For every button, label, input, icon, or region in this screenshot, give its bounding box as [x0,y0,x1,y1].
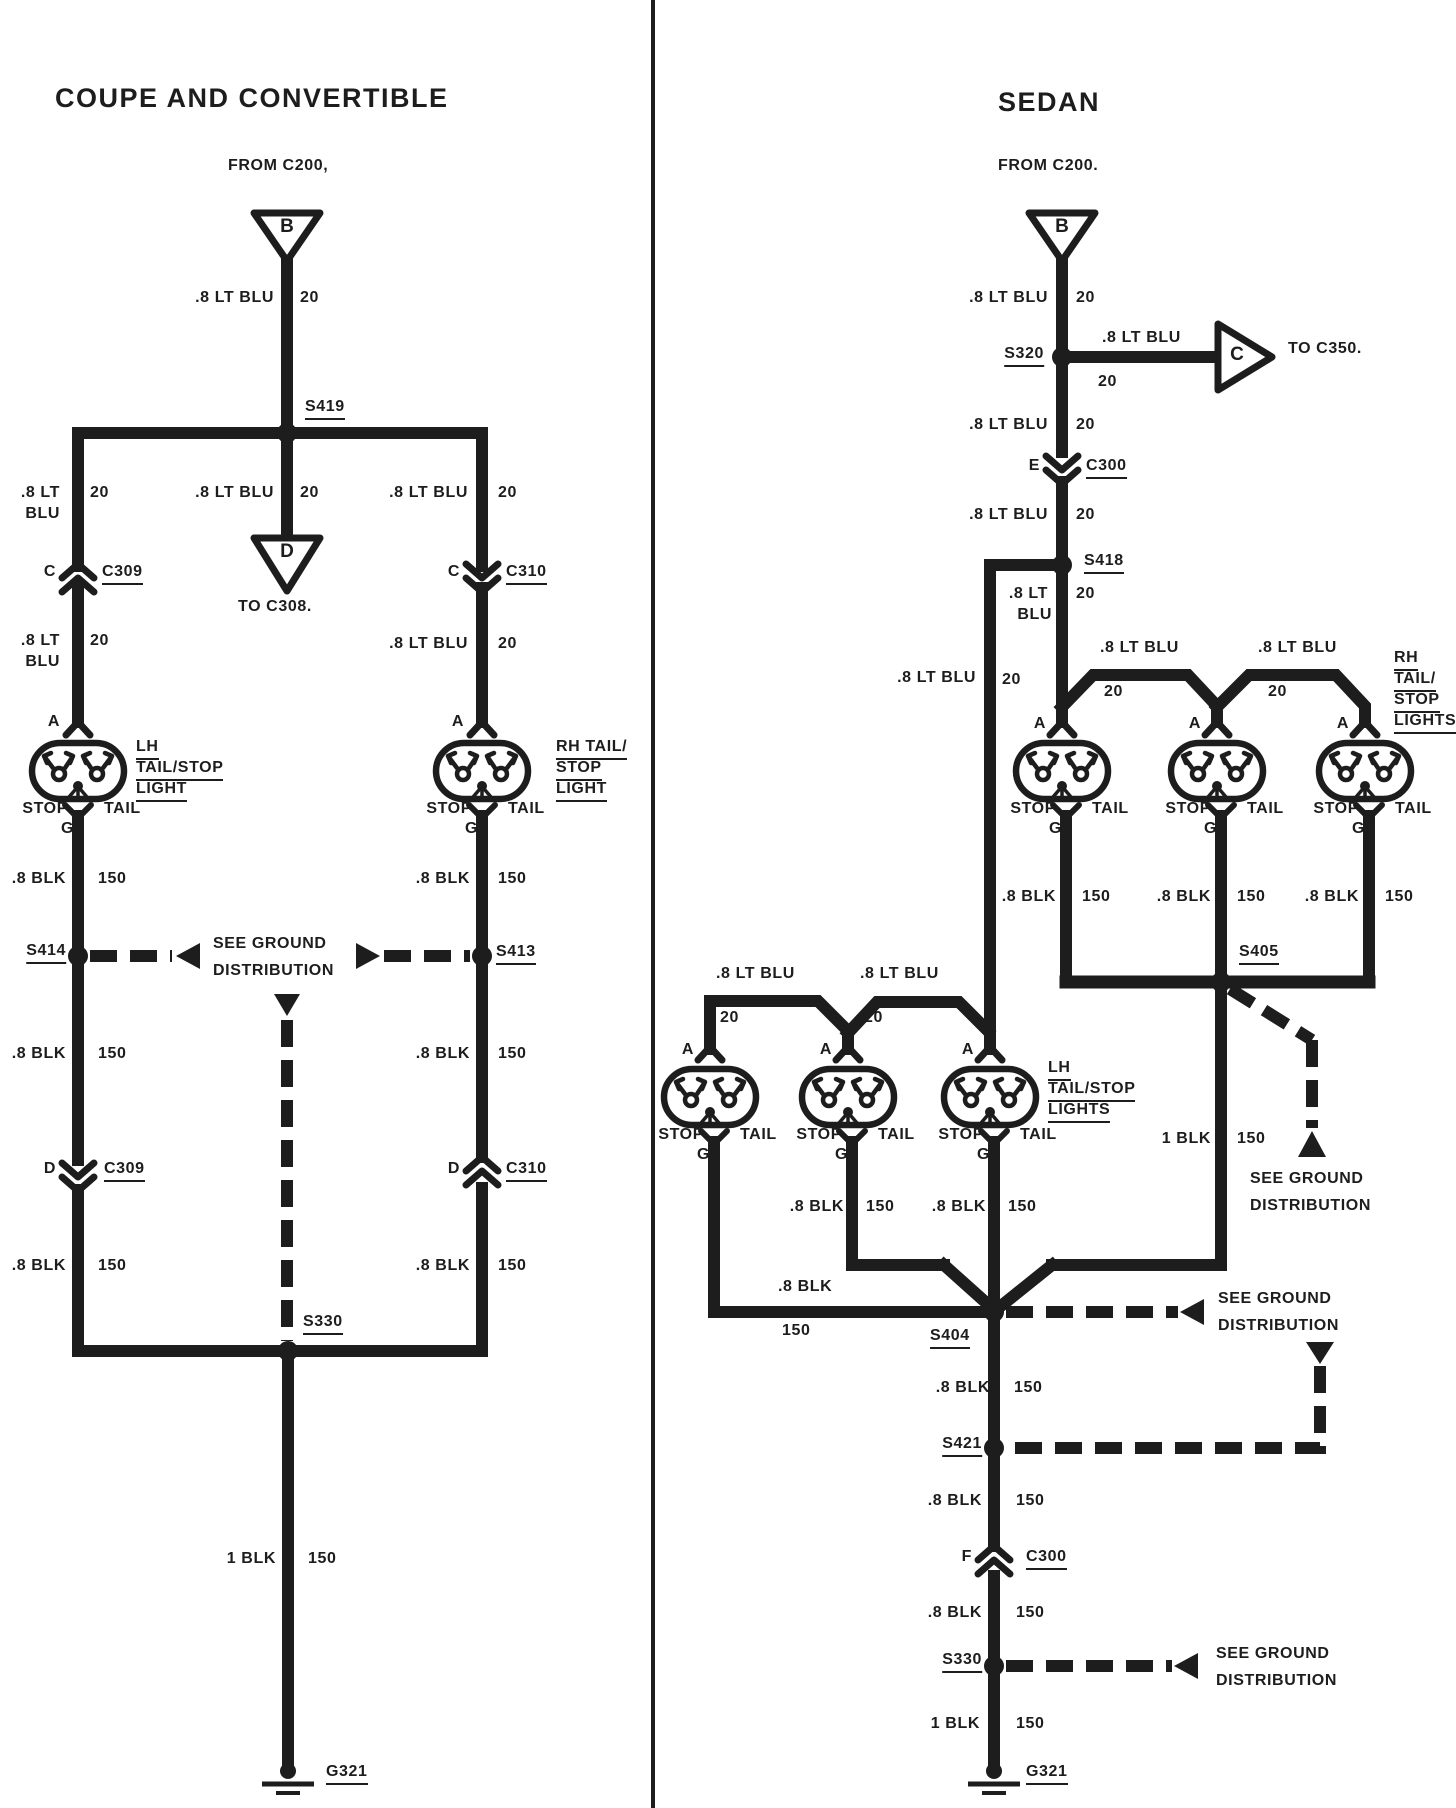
wire-label: BLU [1017,605,1052,625]
ground-ref-arrow-left-coupe [176,943,200,969]
gauge-label: 20 [498,634,517,654]
pin-label-g: G [1204,819,1217,839]
splice-dot-s330-sedan [984,1656,1004,1676]
ground-ref-text: SEE GROUND [1218,1289,1332,1309]
triangle-d-letter: D [270,541,304,563]
ground-ref-arrow-s330-sedan [1174,1653,1198,1679]
wire-label: 1 BLK [931,1714,980,1734]
gauge-label: 150 [1237,887,1266,907]
pin-label-e: E [1029,456,1040,476]
wire-label: .8 LT BLU [1258,638,1337,658]
gauge-label: 20 [90,483,109,503]
wire-label: .8 LT BLU [195,288,274,308]
gauge-label: 150 [498,1256,527,1276]
pin-label-stop: STOP [1165,799,1211,819]
gauge-label: 150 [1014,1378,1043,1398]
gauge-label: 150 [498,1044,527,1064]
bulb-rh-tail-stop-light [436,743,528,799]
pin-label-stop: STOP [22,799,68,819]
wire-label: .8 BLK [416,869,470,889]
pin-label-g: G [1049,819,1062,839]
gauge-label: 150 [1385,887,1414,907]
pin-label-a: A [820,1040,832,1060]
sedan-from-label: FROM C200. [998,156,1098,176]
pin-label-c: C [448,562,460,582]
wire-label: .8 BLK [1157,887,1211,907]
ground-ref-text: SEE GROUND [1216,1644,1330,1664]
wire-label: .8 BLK [12,869,66,889]
splice-label-s330-sedan: S330 [942,1650,982,1673]
pin-label-g: G [61,819,74,839]
bulb-group-label-rh: STOP [1394,690,1440,713]
wire-label: .8 BLK [790,1197,844,1217]
gauge-label: 150 [98,1256,127,1276]
splice-label-s418: S418 [1084,551,1124,574]
wire-label: .8 BLK [928,1491,982,1511]
splice-label-s414: S414 [26,941,66,964]
bulb-label-lh: LH [136,737,159,760]
bulb-group-label-lh: LH [1048,1058,1071,1081]
gauge-label: 150 [866,1197,895,1217]
gauge-label: 150 [98,869,127,889]
gauge-label: 20 [1002,670,1021,690]
gauge-label: 150 [1082,887,1111,907]
bulb-group-label-rh: TAIL/ [1394,669,1436,692]
bulb-group-label-lh: TAIL/STOP [1048,1079,1135,1102]
wire-label: .8 LT BLU [195,483,274,503]
connector-label-c300: C300 [1026,1547,1067,1570]
bulb-label-rh: LIGHT [556,779,607,802]
pin-label-c: C [44,562,56,582]
gauge-label: 20 [498,483,517,503]
wire-label: .8 LT BLU [389,634,468,654]
connector-c310-d-icon [466,1157,498,1185]
coupe-from-label: FROM C200, [228,156,328,176]
sedan-title: SEDAN [998,86,1100,120]
bulb-label-rh: STOP [556,758,602,781]
bulb-lh-2 [802,1069,894,1125]
wire-label: BLU [25,504,60,524]
splice-label-s405: S405 [1239,942,1279,965]
splice-label-s320: S320 [1004,344,1044,367]
wire-label: .8 BLK [1002,887,1056,907]
gauge-label: 20 [1076,505,1095,525]
wire-label: .8 LT BLU [969,505,1048,525]
wire-label: .8 LT [21,483,60,503]
wire-label: .8 LT BLU [716,964,795,984]
pin-label-g: G [977,1145,990,1165]
wire-label: .8 LT BLU [1100,638,1179,658]
coupe-title: COUPE AND CONVERTIBLE [55,82,449,116]
bulb-lh-tail-stop-light [32,743,124,799]
connector-label-c310: C310 [506,562,547,585]
wire-label: .8 BLK [1305,887,1359,907]
gauge-label: 20 [90,631,109,651]
pin-label-g: G [465,819,478,839]
gauge-label: 150 [782,1321,811,1341]
pin-label-stop: STOP [658,1125,704,1145]
pin-label-tail: TAIL [1247,799,1284,819]
splice-label-s404: S404 [930,1326,970,1349]
gauge-label: 20 [1076,584,1095,604]
pin-label-tail: TAIL [104,799,141,819]
ground-ref-arrow-down-coupe [274,994,300,1016]
ground-ref-text: SEE GROUND [1250,1169,1364,1189]
gauge-label: 20 [1104,682,1123,702]
connector-label-c300: C300 [1086,456,1127,479]
bulb-group-label-rh: RH [1394,648,1418,671]
wire-label: .8 BLK [936,1378,990,1398]
gauge-label: 20 [300,483,319,503]
pin-label-a: A [1034,714,1046,734]
pin-label-g: G [1352,819,1365,839]
pin-label-stop: STOP [938,1125,984,1145]
wire-label: .8 BLK [778,1277,832,1297]
bulb-rh-1 [1016,743,1108,799]
gauge-label: 150 [98,1044,127,1064]
triangle-b-letter: B [1045,216,1079,238]
bulb-lh-1 [664,1069,756,1125]
splice-label-s421: S421 [942,1434,982,1457]
pin-label-tail: TAIL [878,1125,915,1145]
gauge-label: 20 [720,1008,739,1028]
gauge-label: 150 [1237,1129,1266,1149]
pin-a-chevron-lh [66,722,90,735]
gauge-label: 150 [1016,1491,1045,1511]
splice-label-s419: S419 [305,397,345,420]
splice-label-s413: S413 [496,942,536,965]
bulb-rh-3 [1319,743,1411,799]
bulb-group-label-lh: LIGHTS [1048,1100,1110,1123]
gauge-label: 20 [1076,288,1095,308]
wire-label: .8 LT [1009,584,1048,604]
wire-label: .8 LT BLU [389,483,468,503]
pin-label-tail: TAIL [740,1125,777,1145]
bulb-label-rh: RH TAIL/ [556,737,627,760]
triangle-b-letter: B [270,216,304,238]
pin-label-d: D [448,1159,460,1179]
wire-label: .8 LT [21,631,60,651]
ground-label-g321: G321 [326,1762,368,1785]
gauge-label: 20 [300,288,319,308]
pin-label-stop: STOP [1010,799,1056,819]
wire-label: .8 BLK [12,1044,66,1064]
wire-label: .8 LT BLU [969,288,1048,308]
wire-label: .8 LT BLU [1102,328,1181,348]
pin-label-tail: TAIL [1020,1125,1057,1145]
splice-dot-s419 [277,423,297,443]
ground-ref-arrow-s405 [1298,1131,1326,1157]
wiring-diagram-page: COUPE AND CONVERTIBLE FROM C200, B .8 LT… [0,0,1456,1808]
bulb-lh-3 [944,1069,1036,1125]
ground-ref-arrow-s421 [1306,1342,1334,1364]
ground-ref-text: DISTRIBUTION [1216,1671,1337,1691]
gauge-label: 150 [1008,1197,1037,1217]
pin-label-a: A [682,1040,694,1060]
pin-label-a: A [1189,714,1201,734]
ground-ref-text: DISTRIBUTION [213,961,334,981]
ground-label-g321-sedan: G321 [1026,1762,1068,1785]
wire-label: .8 BLK [932,1197,986,1217]
wire-label: .8 BLK [928,1603,982,1623]
pin-label-tail: TAIL [508,799,545,819]
gauge-label: 20 [1268,682,1287,702]
pin-label-a: A [48,712,60,732]
triangle-c-letter: C [1220,344,1254,366]
bulb-rh-2 [1171,743,1263,799]
wire-label: .8 LT BLU [860,964,939,984]
gauge-label: 150 [498,869,527,889]
gauge-label: 150 [308,1549,337,1569]
bulb-label-lh: LIGHT [136,779,187,802]
gauge-label: 20 [1076,415,1095,435]
bulb-group-label-rh: LIGHTS [1394,711,1456,734]
coupe-circuit [32,213,528,1793]
splice-label-s330: S330 [303,1312,343,1335]
wire-label: 1 BLK [1162,1129,1211,1149]
ground-symbol-g321-sedan [986,1763,1002,1779]
ground-ref-text: SEE GROUND [213,934,327,954]
pin-label-g: G [835,1145,848,1165]
pin-label-g: G [697,1145,710,1165]
pin-label-a: A [962,1040,974,1060]
connector-label-c309: C309 [104,1159,145,1182]
ground-ref-text: DISTRIBUTION [1250,1196,1371,1216]
wire-label: .8 BLK [12,1256,66,1276]
pin-label-tail: TAIL [1092,799,1129,819]
wire-label: .8 LT BLU [897,668,976,688]
wire-label: .8 LT BLU [969,415,1048,435]
pin-label-stop: STOP [796,1125,842,1145]
ground-symbol-g321-coupe [280,1763,296,1779]
gauge-label: 150 [1016,1714,1045,1734]
gauge-label: 20 [864,1008,883,1028]
wire-label: .8 BLK [416,1256,470,1276]
wire-label: 1 BLK [227,1549,276,1569]
wire-label: BLU [25,652,60,672]
sedan-to-c350-label: TO C350. [1288,339,1362,359]
pin-label-d: D [44,1159,56,1179]
pin-a-chevron-rh [470,722,494,735]
connector-c300-f-icon [978,1546,1010,1574]
coupe-to-c308-label: TO C308. [238,597,312,617]
pin-label-a: A [452,712,464,732]
gauge-label: 20 [1098,372,1117,392]
connector-label-c309: C309 [102,562,143,585]
pin-label-f: F [962,1547,972,1567]
pin-label-stop: STOP [1313,799,1359,819]
ground-ref-arrow-s404 [1180,1299,1204,1325]
pin-label-stop: STOP [426,799,472,819]
pin-label-tail: TAIL [1395,799,1432,819]
pin-label-a: A [1337,714,1349,734]
ground-ref-text: DISTRIBUTION [1218,1316,1339,1336]
bulb-label-lh: TAIL/STOP [136,758,223,781]
gauge-label: 150 [1016,1603,1045,1623]
ground-ref-arrow-right-coupe [356,943,380,969]
connector-label-c310: C310 [506,1159,547,1182]
wire-label: .8 BLK [416,1044,470,1064]
